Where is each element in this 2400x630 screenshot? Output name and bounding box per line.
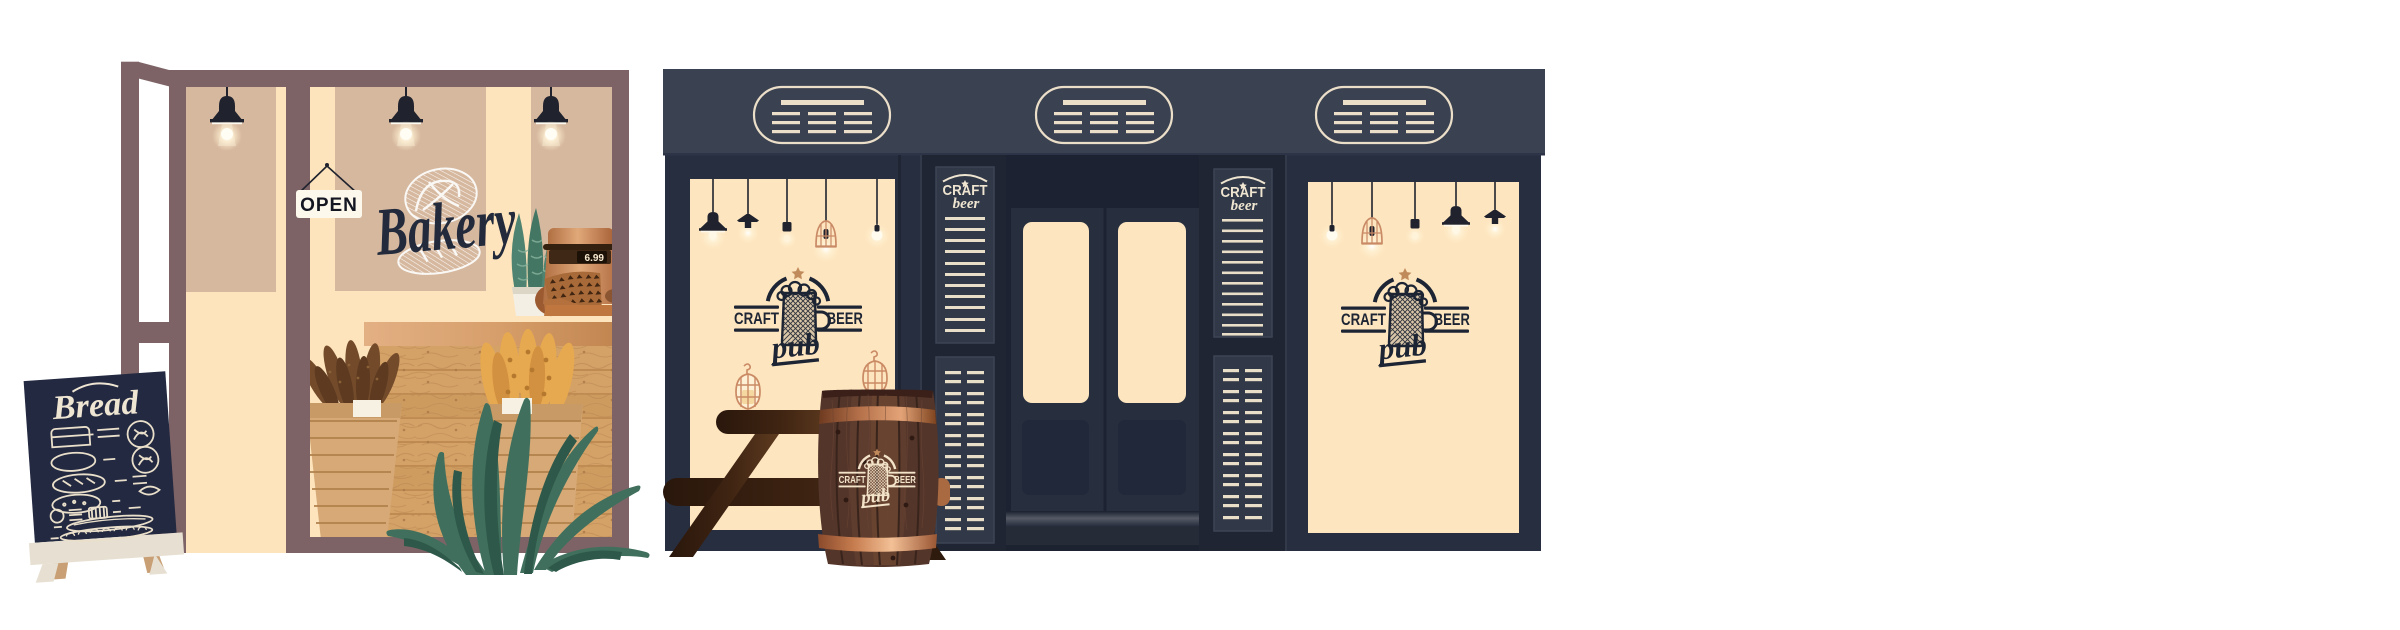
svg-text:OPEN: OPEN — [300, 195, 358, 216]
svg-text:Bread: Bread — [50, 384, 140, 427]
svg-text:Bakery: Bakery — [372, 182, 519, 270]
svg-text:6.99: 6.99 — [585, 253, 605, 264]
